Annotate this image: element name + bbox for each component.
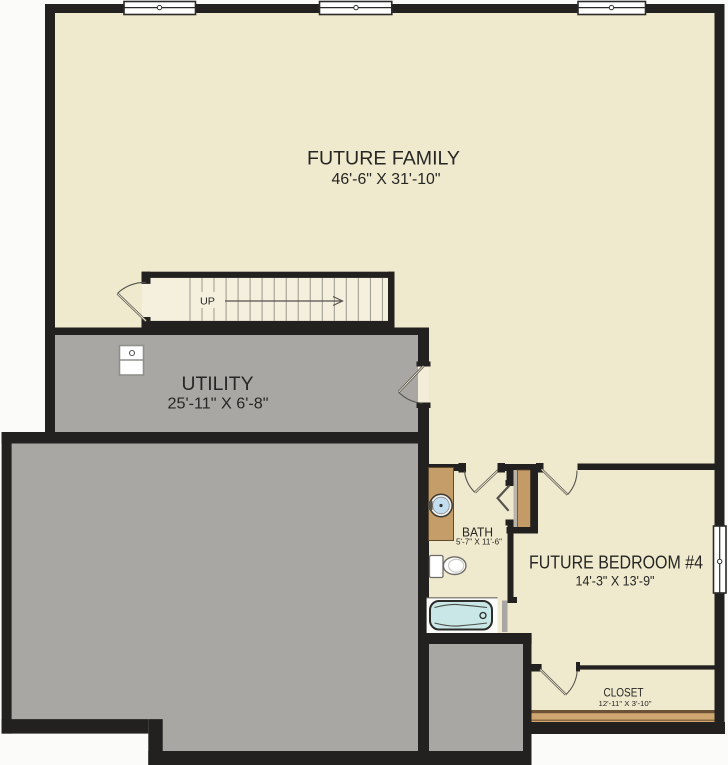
svg-text:FUTURE FAMILY: FUTURE FAMILY — [307, 149, 460, 170]
svg-text:14'-3" X 13'-9": 14'-3" X 13'-9" — [576, 573, 655, 589]
svg-text:25'-11" X 6'-8": 25'-11" X 6'-8" — [168, 396, 269, 413]
svg-text:46'-6" X 31'-10": 46'-6" X 31'-10" — [332, 171, 441, 188]
svg-text:UP: UP — [200, 297, 215, 308]
svg-text:FUTURE BEDROOM #4: FUTURE BEDROOM #4 — [529, 552, 703, 573]
svg-text:UTILITY: UTILITY — [182, 373, 254, 395]
svg-text:CLOSET: CLOSET — [604, 688, 644, 700]
svg-text:12'-11" X 3'-10": 12'-11" X 3'-10" — [599, 699, 652, 708]
svg-text:5'-7" X 11'-6": 5'-7" X 11'-6" — [456, 538, 502, 547]
